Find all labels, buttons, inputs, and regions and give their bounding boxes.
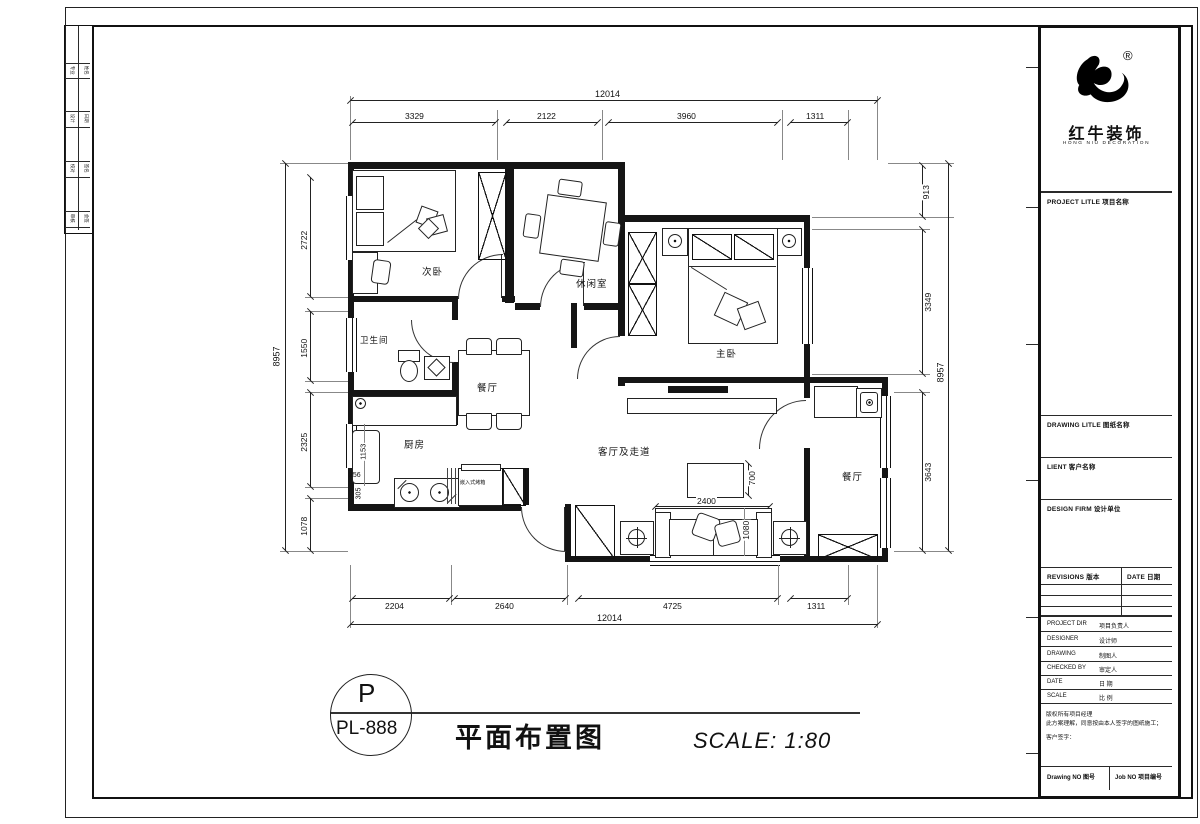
strip-cell: 校对 [69,164,74,173]
dim-line-top-total [350,100,878,101]
dim-line [578,598,778,599]
wall [452,296,458,320]
coffee-table [687,463,744,498]
tv-console [627,398,777,414]
wall [515,303,540,310]
lamp [668,234,682,248]
wall [571,303,577,348]
dim-line [790,598,848,599]
job-no-label: Job NO 项目编号 [1115,772,1162,781]
copyright-note-line2: 此方案理解，同意按由本人签字的图纸施工； [1046,718,1162,727]
project-title-header: PROJECT LITLE 项目名称 [1047,196,1129,206]
wardrobe [478,172,507,260]
drawing-tag-letter: P [358,678,375,709]
wall [625,215,810,222]
drawing-scale: SCALE: 1:80 [693,728,831,754]
floor-lamp [781,529,798,546]
room-label-leisure: 休闲室 [576,280,608,290]
table [539,194,607,262]
dim-line [790,122,848,123]
lamp [782,234,796,248]
wall [348,296,458,302]
dim-label: 8957 [937,361,946,383]
field-cn: 项目负责人 [1099,621,1129,630]
wall [348,162,625,169]
registered-mark: ® [1123,48,1133,63]
room-label-master: 主卧 [716,350,737,360]
dim-line [506,122,598,123]
fold-tick [1026,67,1038,68]
drawing-sheet: 专业 姓名 设计 日期 校对 签名 审核 会签 [0,0,1200,824]
fold-tick [1026,753,1038,754]
field-cn: 日 期 [1099,679,1113,688]
pillow [692,234,732,260]
strip-cell: 姓名 [83,66,88,75]
room-label-dining: 餐厅 [477,384,498,394]
room-label-balcony-dining: 餐厅 [842,473,863,483]
dim-label: 1080 [742,520,751,541]
toilet-bowl [400,360,418,382]
strip-cell: 专业 [69,66,74,75]
dim-line [608,122,778,123]
dim-label: 2400 [696,497,717,506]
drawing-tag-number: PL-888 [336,718,397,740]
room-label-kitchen: 厨房 [404,441,425,451]
sink-drain [866,399,873,406]
drawing-title-header: DRAWING LITLE 图纸名称 [1047,419,1130,429]
fold-tick [1026,344,1038,345]
wall [502,296,515,302]
door-leaf [501,254,502,298]
cabinet [818,534,878,560]
field-en: DESIGNER [1047,636,1078,642]
dim-label: 913 [922,184,931,200]
dim-label: 1311 [806,602,826,611]
gas-point [355,398,366,409]
chair [559,258,585,277]
dim-label: 3960 [676,112,697,121]
revisions-date-header: DATE 日期 [1127,571,1160,581]
dim-label: 700 [748,470,757,486]
field-en: DATE [1047,679,1063,685]
field-cn: 比 例 [1099,693,1113,702]
dim-label: 8957 [273,345,282,367]
dim-label: 3349 [924,292,933,313]
sofa-armrest [756,512,772,558]
dim-line [310,311,311,381]
dim-label: 3329 [404,112,425,121]
tv [668,386,728,393]
wardrobe [628,232,657,284]
chair [557,178,583,197]
wall [618,377,810,383]
field-en: SCALE [1047,693,1067,699]
dim-label: 1153 [359,443,367,461]
chair [466,338,492,355]
appliance-top [461,464,501,471]
strip-cell: 日期 [83,114,88,123]
strip-cell: 审核 [69,214,74,223]
brand-name-en: HONG NIU DECORATION [1041,141,1172,146]
dim-line [310,392,311,487]
dim-label: 12014 [596,614,623,623]
room-label-bedroom2: 次卧 [422,268,443,278]
dim-line-bottom-total [350,624,878,625]
dim-label: 1550 [300,338,309,359]
sheet-line [688,266,776,267]
dim-label: 2722 [300,230,309,251]
dim-label: 2325 [300,432,309,453]
dim-line [310,177,311,297]
dim-label: 2640 [494,602,515,611]
kitchen-counter [352,396,457,426]
window [802,268,813,344]
title-block: ® 红牛装饰 HONG NIU DECORATION PROJECT LITLE… [1038,25,1181,799]
pillow [356,176,384,210]
pillow [734,234,774,260]
appliance-label: 嵌入式烤箱 [460,481,485,486]
fold-tick [1026,480,1038,481]
strip-cell: 会签 [83,214,88,223]
dim-line [655,506,770,507]
counter [814,386,858,418]
built-in-appliance [458,468,504,506]
entry-cabinet [575,505,615,559]
client-sign-label: 客户签字： [1046,732,1075,741]
dim-line [352,122,496,123]
dim-line [454,598,566,599]
chair [496,413,522,430]
strip-cell: 设计 [69,114,74,123]
drawing-no-label: Drawing NO 图号 [1047,772,1095,781]
pillow [356,212,384,246]
wall-hatch [447,468,457,504]
chair [496,338,522,355]
dim-label: 12014 [594,90,621,99]
field-cn: 设计师 [1099,636,1117,645]
field-en: PROJECT DIR [1047,621,1087,627]
field-en: CHECKED BY [1047,665,1086,671]
dim-label: 1078 [300,516,309,537]
client-header: LIENT 客户名称 [1047,461,1096,471]
dim-label: 305 [355,487,362,501]
floor-lamp [628,529,645,546]
window [346,318,357,372]
chair [522,213,541,239]
chair [370,259,391,285]
field-cn: 制图人 [1099,651,1117,660]
design-firm-header: DESIGN FIRM 设计单位 [1047,503,1121,513]
dim-label: 1311 [805,112,825,121]
chair [602,221,621,247]
signature-strip: 专业 姓名 设计 日期 校对 签名 审核 会签 [64,25,94,234]
window [880,478,891,548]
chair [466,413,492,430]
wall [804,383,810,398]
burner [400,483,419,502]
dim-label: 2204 [384,602,405,611]
room-label-living: 客厅及走道 [598,448,651,458]
dim-label: 3643 [924,462,933,483]
room-label-bath: 卫生间 [360,336,389,345]
dim-label: 4725 [662,602,683,611]
dim-line-right-total [948,163,949,551]
dim-line-left-total [285,163,286,551]
dim-line [310,498,311,551]
dim-label: 256 [349,472,361,479]
drawing-title: 平面布置图 [455,716,605,755]
field-en: DRAWING [1047,651,1076,657]
wall [810,377,888,383]
wardrobe [628,284,657,336]
copyright-note-line1: 版权所有项目经理 [1046,709,1092,718]
dim-line [352,598,450,599]
fold-tick [1026,207,1038,208]
field-cn: 审定人 [1099,665,1117,674]
tall-cabinet [502,468,526,506]
fold-tick [1026,617,1038,618]
strip-cell: 签名 [83,164,88,173]
dim-label: 2122 [536,112,557,121]
door-leaf [564,507,565,551]
revisions-header: REVISIONS 版本 [1047,571,1100,581]
